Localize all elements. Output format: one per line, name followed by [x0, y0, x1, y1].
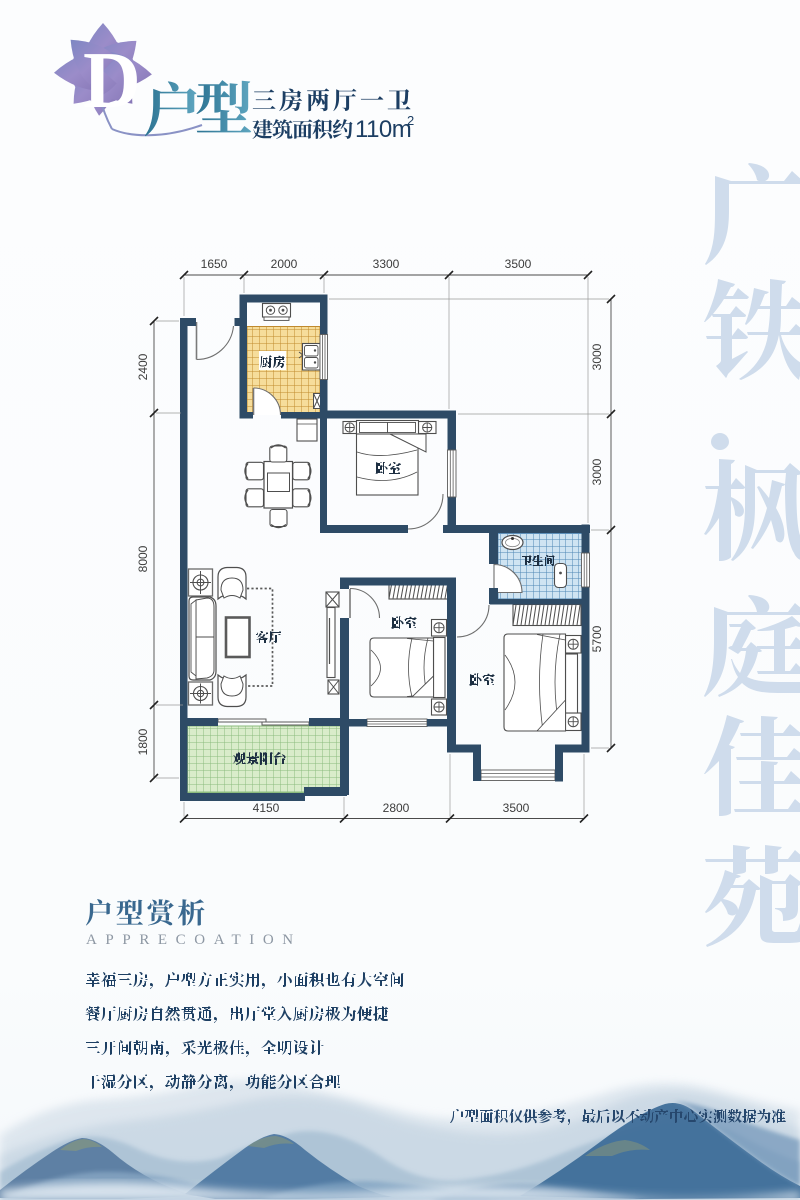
svg-text:2800: 2800: [383, 801, 410, 815]
svg-text:1800: 1800: [136, 728, 150, 755]
svg-text:3500: 3500: [505, 257, 532, 271]
svg-text:2000: 2000: [271, 257, 298, 271]
svg-text:D: D: [83, 37, 141, 125]
svg-text:8000: 8000: [136, 545, 150, 572]
svg-text:5700: 5700: [590, 625, 604, 652]
svg-text:4150: 4150: [253, 801, 280, 815]
svg-text:3000: 3000: [590, 458, 604, 485]
svg-text:3300: 3300: [373, 257, 400, 271]
svg-text:3000: 3000: [590, 343, 604, 370]
svg-text:2: 2: [407, 113, 414, 128]
svg-text:2400: 2400: [136, 353, 150, 380]
svg-text:110m: 110m: [355, 116, 411, 143]
svg-text:3500: 3500: [503, 801, 530, 815]
svg-text:APPRECOATION: APPRECOATION: [86, 932, 302, 948]
svg-text:1650: 1650: [201, 257, 228, 271]
